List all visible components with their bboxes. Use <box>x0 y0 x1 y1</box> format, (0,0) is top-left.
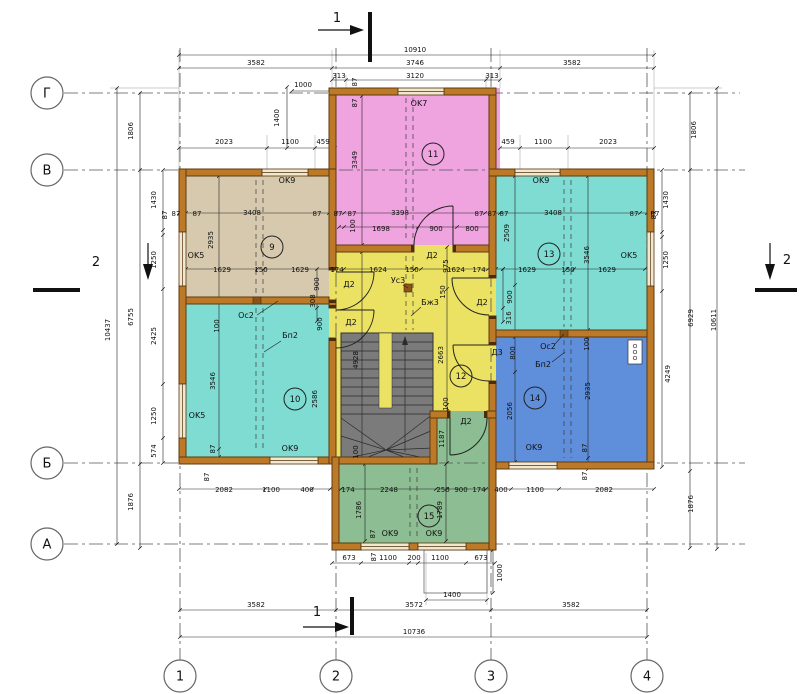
floor-plan-drawing: ГВБА1234 9101112131415 1122 109103582374… <box>0 0 800 694</box>
dim-label: 4928 <box>352 351 360 369</box>
dim-label: 87 <box>313 210 322 218</box>
dim-label: 1876 <box>687 495 695 513</box>
dim-label: 150 <box>405 266 418 274</box>
dim-label: 10910 <box>404 46 426 54</box>
dim-label: 87 <box>370 553 378 562</box>
room-number-label: 15 <box>424 512 435 522</box>
dim-label: 87 <box>172 210 181 218</box>
tag-label: OK5 <box>189 411 206 420</box>
dim-label: 313 <box>485 72 498 80</box>
dim-label: 174 <box>341 486 355 494</box>
dim-label: 174 <box>472 486 486 494</box>
dim-label: 800 <box>509 346 517 359</box>
dim-label: 10437 <box>104 319 112 341</box>
dim-label: 87 <box>193 210 202 218</box>
dim-label: 1698 <box>372 225 390 233</box>
tag-label: OK5 <box>188 251 205 260</box>
dim-label: 673 <box>474 554 487 562</box>
dim-label: 150 <box>254 266 267 274</box>
dim-label: 1786 <box>355 501 363 519</box>
wall-post <box>253 297 261 304</box>
dim-label: 900 <box>313 277 321 290</box>
dim-label: 100 <box>352 445 360 458</box>
dim-label: 3408 <box>544 209 562 217</box>
tag-label: Ос2 <box>238 311 254 320</box>
dim-label: 574 <box>150 444 158 458</box>
tag-label: OK9 <box>533 176 550 185</box>
dim-label: 1250 <box>150 251 158 269</box>
dim-label: 2082 <box>595 486 613 494</box>
dim-label: 459 <box>501 138 514 146</box>
tag-label: Д2 <box>345 318 356 327</box>
appliance-symbol <box>628 340 642 364</box>
dim-label: 1100 <box>281 138 299 146</box>
dim-label: 87 <box>488 210 497 218</box>
dim-label: 3546 <box>209 372 217 390</box>
room-number-label: 12 <box>456 372 467 382</box>
dim-label: 1400 <box>443 591 461 599</box>
dim-label: 1806 <box>127 122 135 140</box>
tag-label: OK9 <box>426 529 443 538</box>
dim-label: 87 <box>581 444 589 453</box>
dim-label: 800 <box>465 225 478 233</box>
tag-label: Д2 <box>460 417 471 426</box>
dim-label: 1100 <box>534 138 552 146</box>
dim-label: 1100 <box>431 554 449 562</box>
dim-label: 2663 <box>437 346 445 364</box>
tag-label: Д2 <box>343 280 354 289</box>
dim-label: 975 <box>442 259 450 272</box>
dim-label: 1789 <box>436 501 444 519</box>
dim-label: 1100 <box>526 486 544 494</box>
dim-label: 100 <box>349 219 357 232</box>
dim-label: 87 <box>651 210 660 218</box>
tag-label: Бж3 <box>421 298 439 307</box>
tag-label: OK7 <box>411 99 428 108</box>
dim-label: 400 <box>494 486 507 494</box>
stair-gap <box>379 333 392 408</box>
room-number-label: 11 <box>428 150 439 160</box>
dim-label: 2082 <box>215 486 233 494</box>
dim-label: 900 <box>454 486 467 494</box>
dim-label: 313 <box>332 72 345 80</box>
dim-label: 87 <box>369 530 377 539</box>
section-mark-label: 1 <box>313 605 321 620</box>
dim-label: 1000 <box>294 81 312 89</box>
room-10-fill <box>179 304 336 464</box>
section-mark-label: 1 <box>333 11 341 26</box>
tag-label: Д2 <box>426 251 437 260</box>
dim-label: 87 <box>161 211 169 220</box>
dim-label: 100 <box>213 319 221 332</box>
dim-label: 1430 <box>150 191 158 209</box>
dim-label: 3582 <box>562 601 580 609</box>
dim-label: 673 <box>342 554 355 562</box>
dim-label: 2056 <box>506 402 514 420</box>
dim-label: 2935 <box>207 231 215 249</box>
dim-label: 3546 <box>583 246 591 264</box>
dim-label: 1250 <box>662 251 670 269</box>
floor-plan-page: ГВБА1234 9101112131415 1122 109103582374… <box>0 0 800 694</box>
dim-label: 308 <box>309 294 317 307</box>
dim-label: 3408 <box>243 209 261 217</box>
dim-label: 1629 <box>291 266 309 274</box>
axis-label: 4 <box>643 670 651 685</box>
dim-label: 6929 <box>687 309 695 327</box>
axis-label: 1 <box>176 670 184 685</box>
dim-label: 316 <box>505 311 513 325</box>
dim-label: 1250 <box>150 407 158 425</box>
axis-label: Г <box>43 87 51 102</box>
dim-label: 2023 <box>215 138 233 146</box>
tag-label: OK5 <box>621 251 638 260</box>
dim-label: 2248 <box>380 486 398 494</box>
dim-label: 87 <box>500 210 509 218</box>
dim-label: 2586 <box>311 390 319 408</box>
room-number-label: 10 <box>290 395 301 405</box>
dim-label: 2935 <box>584 382 592 400</box>
dim-label: 1400 <box>273 109 281 127</box>
dim-label: 2425 <box>150 327 158 345</box>
dim-label: 1629 <box>213 266 231 274</box>
dim-label: 1430 <box>662 191 670 209</box>
dim-label: 2509 <box>503 224 511 242</box>
dim-label: 200 <box>407 554 420 562</box>
dim-label: 900 <box>316 317 324 330</box>
axis-label: В <box>43 164 52 179</box>
tag-label: OK9 <box>526 443 543 452</box>
axis-label: 3 <box>487 670 495 685</box>
dim-label: 100 <box>442 397 450 410</box>
dim-label: 6755 <box>127 308 135 326</box>
dim-label: 2023 <box>599 138 617 146</box>
dim-label: 1629 <box>518 266 536 274</box>
dim-label: 87 <box>351 78 359 87</box>
axis-label: Б <box>43 457 52 472</box>
dim-label: 87 <box>581 472 589 481</box>
dim-label: 87 <box>334 210 343 218</box>
dim-label: 3582 <box>563 59 581 67</box>
dim-label: 3349 <box>351 151 359 169</box>
dim-label: 150 <box>439 285 447 298</box>
section-mark-label: 2 <box>783 253 791 268</box>
tag-label: Ус3 <box>391 276 405 285</box>
dim-label: 1624 <box>369 266 387 274</box>
room-number-label: 13 <box>544 250 555 260</box>
dim-label: 87 <box>630 210 639 218</box>
dim-label: 174 <box>330 266 344 274</box>
dim-label: 3120 <box>406 72 424 80</box>
wall-post <box>560 330 568 337</box>
axis-label: А <box>43 538 52 553</box>
dim-label: 3572 <box>405 601 423 609</box>
tag-label: OK9 <box>279 176 296 185</box>
dim-label: 10611 <box>710 309 718 331</box>
dim-label: 3398 <box>391 209 409 217</box>
tag-label: Бп2 <box>535 360 551 369</box>
room-number-label: 14 <box>530 394 541 404</box>
dim-label: 1187 <box>438 430 446 448</box>
dim-label: 1629 <box>598 266 616 274</box>
dim-label: 1000 <box>496 564 504 582</box>
tag-label: OK9 <box>382 529 399 538</box>
dim-label: 459 <box>316 138 329 146</box>
dim-label: 1806 <box>690 121 698 139</box>
dim-label: 87 <box>209 445 217 454</box>
room-number-label: 9 <box>269 243 274 253</box>
tag-label: Ос2 <box>540 342 556 351</box>
dim-label: 1876 <box>127 493 135 511</box>
dim-label: 1100 <box>379 554 397 562</box>
dim-label: 87 <box>203 473 211 482</box>
dim-label: 3582 <box>247 601 265 609</box>
section-mark-label: 2 <box>92 255 100 270</box>
tag-label: Д3 <box>491 348 502 357</box>
dim-label: 87 <box>348 210 357 218</box>
dim-label: 3746 <box>406 59 424 67</box>
dim-label: 174 <box>472 266 486 274</box>
tag-label: OK9 <box>282 444 299 453</box>
dim-label: 87 <box>351 99 359 108</box>
dim-label: 900 <box>506 290 514 303</box>
axis-label: 2 <box>332 670 340 685</box>
dim-label: 900 <box>429 225 442 233</box>
tag-label: Бп2 <box>282 331 298 340</box>
dim-label: 100 <box>583 337 591 350</box>
dim-label: 1100 <box>262 486 280 494</box>
dim-label: 10736 <box>403 628 426 636</box>
dim-label: 400 <box>300 486 313 494</box>
tag-label: Д2 <box>476 298 487 307</box>
dim-label: 150 <box>561 266 574 274</box>
dim-label: 3582 <box>247 59 265 67</box>
dim-label: 4249 <box>664 365 672 383</box>
dim-label: 250 <box>436 486 449 494</box>
dim-label: 87 <box>475 210 484 218</box>
